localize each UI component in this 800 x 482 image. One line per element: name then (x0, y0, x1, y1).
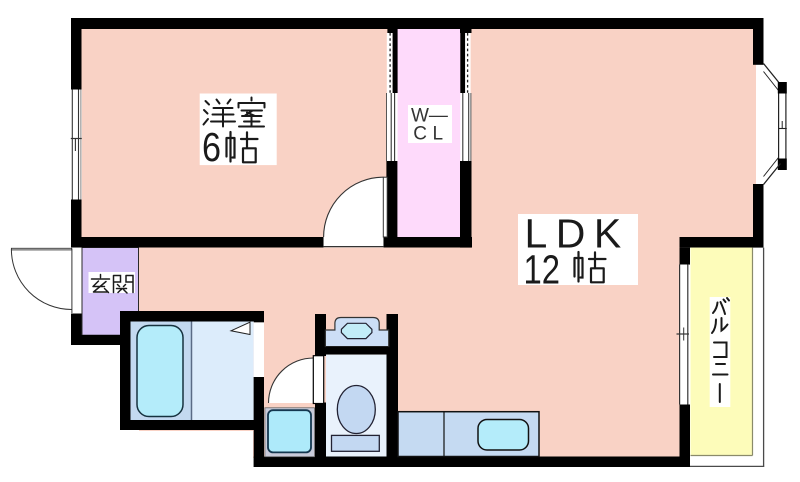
svg-text:CL: CL (413, 124, 448, 145)
svg-text:6: 6 (202, 124, 221, 170)
svg-text:12: 12 (524, 246, 561, 292)
